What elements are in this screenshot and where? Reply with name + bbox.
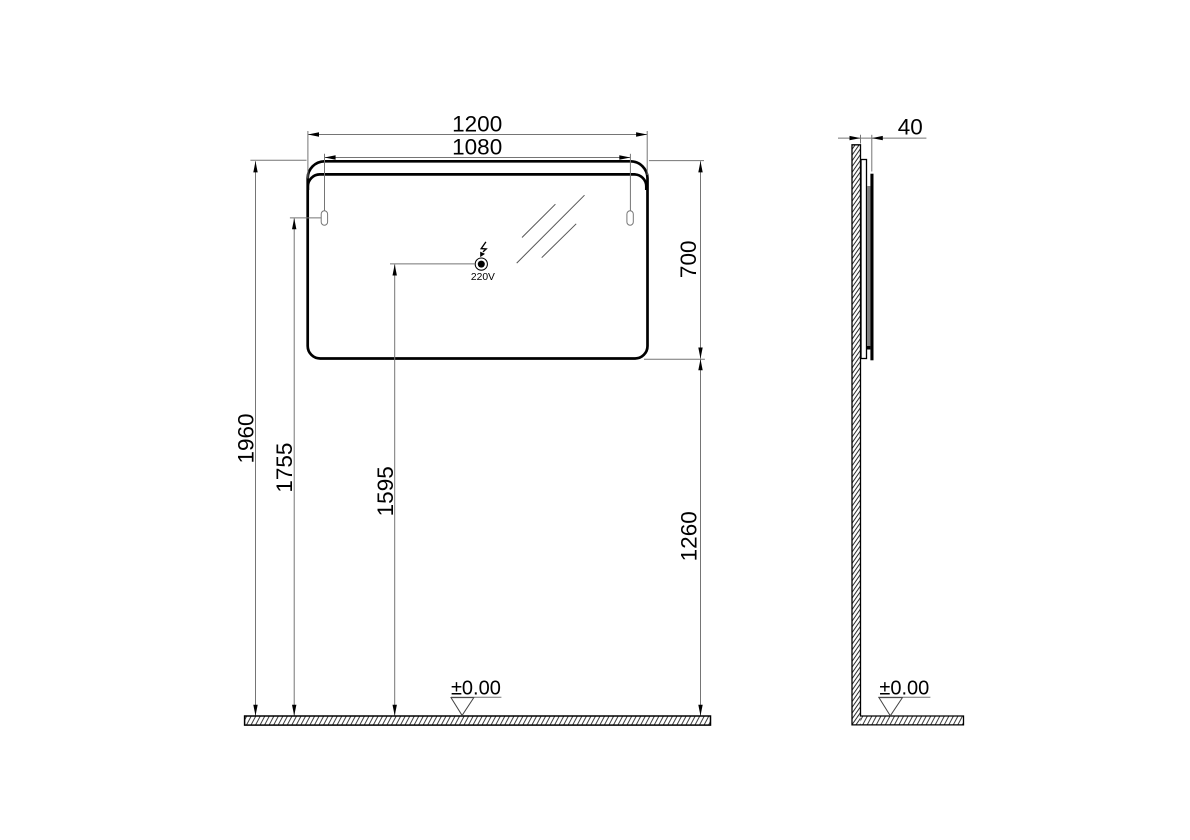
svg-text:1960: 1960 [233,413,258,463]
svg-text:1200: 1200 [452,112,502,137]
svg-text:±0.00: ±0.00 [879,678,929,700]
svg-text:40: 40 [898,115,923,140]
svg-text:700: 700 [676,241,701,279]
svg-text:1595: 1595 [373,466,398,516]
svg-text:1080: 1080 [452,135,502,160]
svg-text:1260: 1260 [676,511,701,561]
svg-text:220V: 220V [471,272,495,283]
svg-text:1755: 1755 [272,443,297,493]
svg-text:±0.00: ±0.00 [451,678,501,700]
